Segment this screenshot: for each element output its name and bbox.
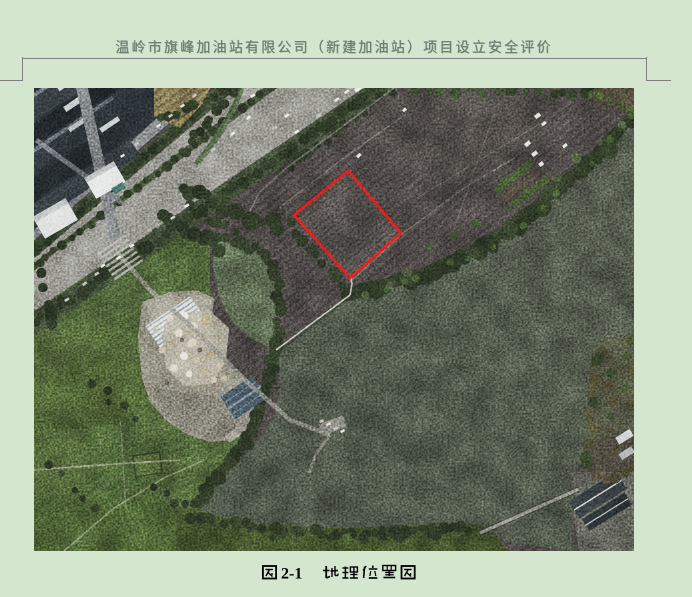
svg-text:2-1: 2-1 <box>281 566 302 583</box>
